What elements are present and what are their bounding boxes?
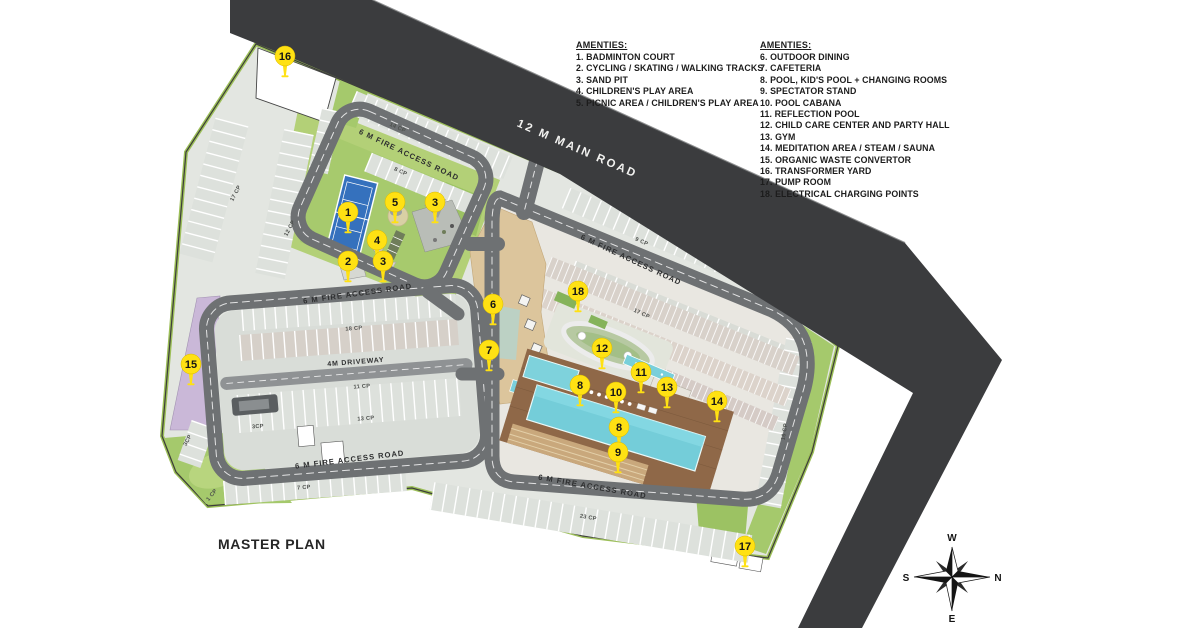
amenity-item: 10. POOL CABANA xyxy=(760,98,960,109)
amenities-heading: AMENTIES: xyxy=(576,40,766,50)
compass-rose: W E S N xyxy=(903,533,1002,625)
page-title: MASTER PLAN xyxy=(218,536,326,552)
amenity-item: 17. PUMP ROOM xyxy=(760,177,960,188)
amenity-item: 1. BADMINTON COURT xyxy=(576,52,766,63)
amenity-item: 6. OUTDOOR DINING xyxy=(760,52,960,63)
svg-text:8: 8 xyxy=(577,380,583,392)
svg-text:3: 3 xyxy=(380,256,386,268)
amenities-heading: AMENTIES: xyxy=(760,40,960,50)
svg-text:12: 12 xyxy=(596,343,608,355)
svg-text:5: 5 xyxy=(392,197,398,209)
svg-text:18: 18 xyxy=(572,286,584,298)
svg-text:2: 2 xyxy=(345,256,351,268)
amenity-item: 14. MEDITATION AREA / STEAM / SAUNA xyxy=(760,143,960,154)
amenities-list-left: AMENTIES: 1. BADMINTON COURT 2. CYCLING … xyxy=(576,40,766,109)
svg-text:14: 14 xyxy=(711,396,724,408)
svg-text:15: 15 xyxy=(185,359,197,371)
svg-text:10: 10 xyxy=(610,387,622,399)
amenity-item: 5. PICNIC AREA / CHILDREN'S PLAY AREA xyxy=(576,98,766,109)
svg-text:6: 6 xyxy=(490,299,496,311)
amenity-item: 12. CHILD CARE CENTER AND PARTY HALL xyxy=(760,120,960,131)
amenity-item: 7. CAFETERIA xyxy=(760,63,960,74)
compass-east-label: E xyxy=(949,614,956,625)
svg-text:17: 17 xyxy=(739,541,751,553)
amenity-item: 18. ELECTRICAL CHARGING POINTS xyxy=(760,189,960,200)
amenity-item: 4. CHILDREN'S PLAY AREA xyxy=(576,86,766,97)
svg-text:1: 1 xyxy=(345,207,351,219)
amenity-item: 16. TRANSFORMER YARD xyxy=(760,166,960,177)
parking-count-label: 18 CP xyxy=(345,325,362,332)
parking-count-label: 3CP xyxy=(252,424,264,431)
amenity-item: 15. ORGANIC WASTE CONVERTOR xyxy=(760,155,960,166)
svg-text:11: 11 xyxy=(635,367,647,379)
svg-text:8: 8 xyxy=(616,422,622,434)
master-plan-page: 12 M MAIN ROAD 6 M FIRE ACCESS ROAD 6 M … xyxy=(0,0,1200,628)
svg-text:4: 4 xyxy=(374,235,381,247)
amenities-list-right: AMENTIES: 6. OUTDOOR DINING 7. CAFETERIA… xyxy=(760,40,960,200)
amenity-item: 13. GYM xyxy=(760,132,960,143)
compass-west-label: W xyxy=(947,533,957,544)
parking-count-label: 7 CP xyxy=(297,484,311,491)
amenity-item: 2. CYCLING / SKATING / WALKING TRACKS xyxy=(576,63,766,74)
parking-count-label: 11 CP xyxy=(353,383,370,390)
amenity-item: 3. SAND PIT xyxy=(576,75,766,86)
svg-text:3: 3 xyxy=(432,197,438,209)
svg-text:7: 7 xyxy=(486,345,492,357)
svg-text:16: 16 xyxy=(279,51,291,63)
svg-text:13: 13 xyxy=(661,382,673,394)
svg-text:9: 9 xyxy=(615,447,621,459)
amenity-item: 9. SPECTATOR STAND xyxy=(760,86,960,97)
compass-south-label: S xyxy=(903,573,910,584)
parking-count-label: 13 CP xyxy=(357,415,374,422)
amenity-item: 8. POOL, KID'S POOL + CHANGING ROOMS xyxy=(760,75,960,86)
amenity-item: 11. REFLECTION POOL xyxy=(760,109,960,120)
compass-north-label: N xyxy=(994,573,1001,584)
